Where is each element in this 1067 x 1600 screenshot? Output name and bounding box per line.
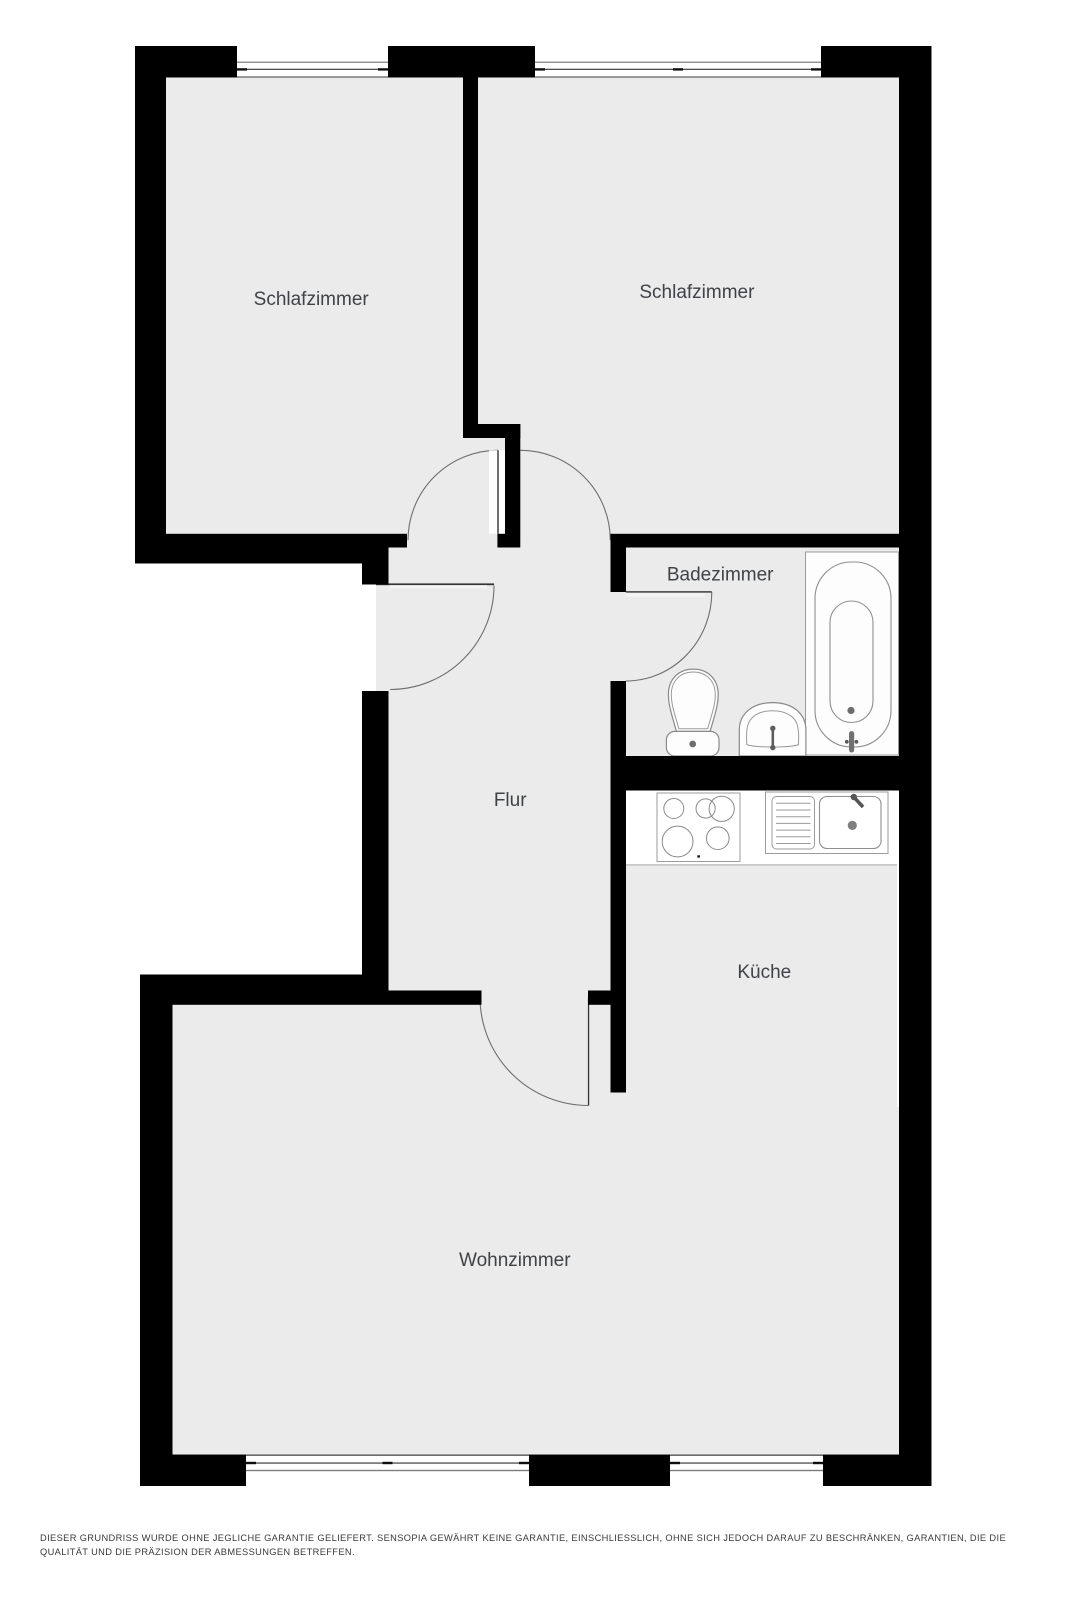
svg-text:Wohnzimmer: Wohnzimmer <box>459 1250 571 1271</box>
svg-text:Flur: Flur <box>494 790 527 811</box>
svg-text:Schlafzimmer: Schlafzimmer <box>639 282 755 303</box>
svg-text:Schlafzimmer: Schlafzimmer <box>254 289 370 310</box>
svg-text:Küche: Küche <box>737 962 791 983</box>
svg-text:Badezimmer: Badezimmer <box>667 565 774 586</box>
